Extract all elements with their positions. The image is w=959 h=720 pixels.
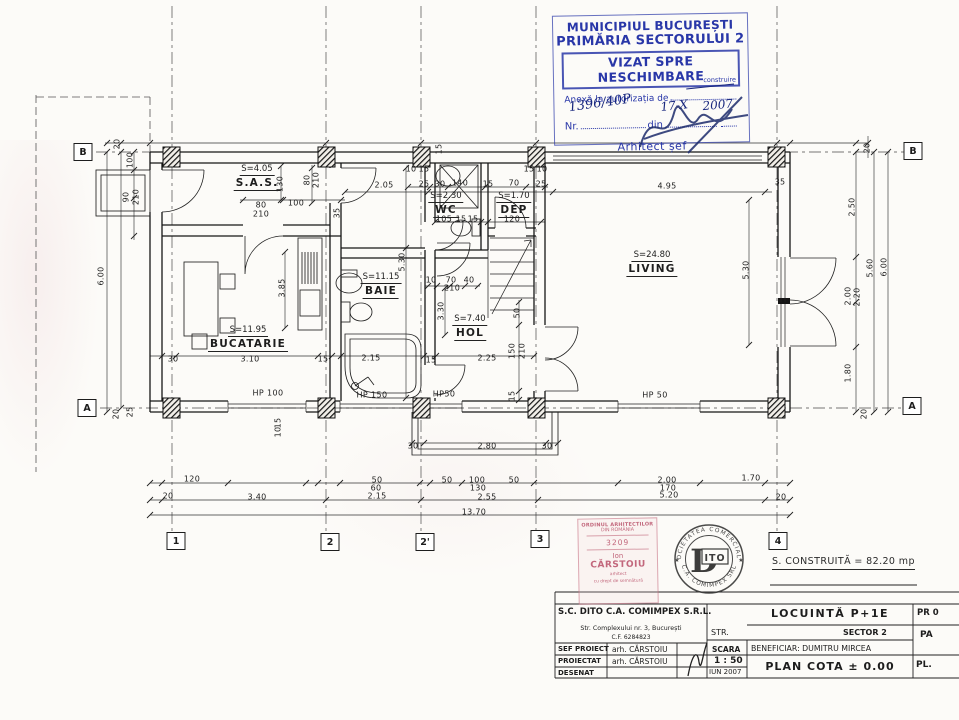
title-block-pa: PA: [920, 630, 933, 640]
title-block-role-1: SEF PROIECT: [558, 645, 609, 653]
window-lines: [228, 156, 785, 412]
title-block-scale-value: 1 : 50: [714, 656, 743, 666]
built-area-note: S. CONSTRUITĂ = 82.20 mp: [772, 556, 915, 570]
door-swings: [162, 168, 836, 395]
handwritten-year: 2007: [702, 97, 734, 114]
title-block-date: IUN 2007: [709, 668, 741, 676]
title-block-name-1: arh. CĂRSTOIU: [612, 645, 668, 654]
oar-last-name: CĂRSTOIU: [579, 559, 657, 570]
architect-order-stamp: ORDINUL ARHITECTILOR DIN ROMÂNIA 3209 Io…: [577, 517, 658, 604]
star-icon: ★: [674, 557, 679, 564]
star-icon: ★: [738, 557, 743, 564]
dotted-line: [581, 117, 646, 129]
staircase: [490, 238, 534, 314]
title-block-project-title: LOCUINTĂ P+1E: [747, 607, 913, 620]
title-block-name-2: arh. CĂRSTOIU: [612, 657, 668, 666]
title-block-address: Str. Complexului nr. 3, București: [558, 625, 704, 632]
title-block-cf: C.F. 6284823: [558, 634, 704, 641]
dotted-line: [721, 116, 737, 127]
approval-stamp: MUNICIPIUL BUCUREȘTI PRIMĂRIA SECTORULUI…: [552, 12, 750, 145]
stamp-nr-label: Nr.: [565, 121, 579, 132]
stamp-authority: PRIMĂRIA SECTORULUI 2: [553, 31, 747, 49]
title-block-sheet-title: PLAN COTA ± 0.00: [747, 660, 913, 673]
dotted-line: [665, 116, 717, 128]
structural-columns: [163, 147, 785, 418]
logo-ito-text: ITO: [704, 553, 725, 564]
title-block-street-label: STR.: [711, 628, 729, 637]
oar-small1: arhitect: [579, 571, 657, 577]
grid-axes: [96, 6, 905, 532]
handwritten-date: 17-X: [660, 97, 689, 114]
property-lines: [36, 95, 150, 472]
handwritten-check: [688, 643, 707, 676]
walls: [150, 152, 790, 412]
scanned-floor-plan-sheet: SOCIETATEA COMERCIALĂ C.A. COMIMPEX SRL …: [0, 0, 959, 720]
oar-number: 3209: [579, 537, 657, 547]
oar-small2: cu drept de semnătură: [579, 578, 657, 584]
stamp-din-label: din: [647, 120, 663, 131]
title-block-company: S.C. DITO C.A. COMIMPEX S.R.L.: [558, 607, 704, 617]
dimension-lines: [105, 136, 888, 515]
title-block-pl: PL.: [916, 660, 932, 670]
title-block-pr: PR 0: [917, 608, 939, 618]
title-block-scara-label: SCARA: [712, 645, 740, 654]
title-block-role-3: DESENAT: [558, 669, 594, 677]
title-block-beneficiary: BENEFICIAR: DUMITRU MIRCEA: [751, 644, 871, 653]
title-block-sector: SECTOR 2: [843, 628, 887, 637]
title-block-role-2: PROIECTAT: [558, 657, 601, 665]
